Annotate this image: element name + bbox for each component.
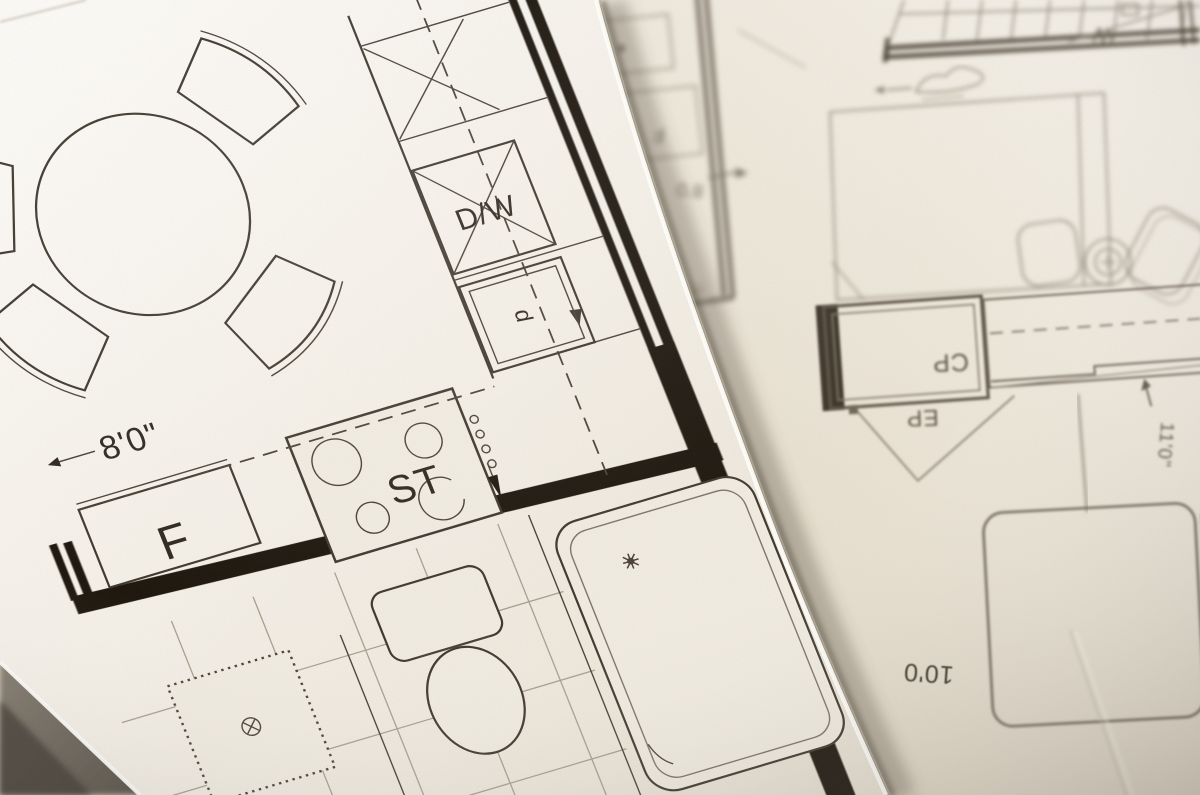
blueprint-photo: W F 8'0 bbox=[0, 0, 1200, 795]
blueprint-scene: W F 8'0 bbox=[0, 0, 1200, 795]
grain-overlay bbox=[0, 0, 1200, 795]
